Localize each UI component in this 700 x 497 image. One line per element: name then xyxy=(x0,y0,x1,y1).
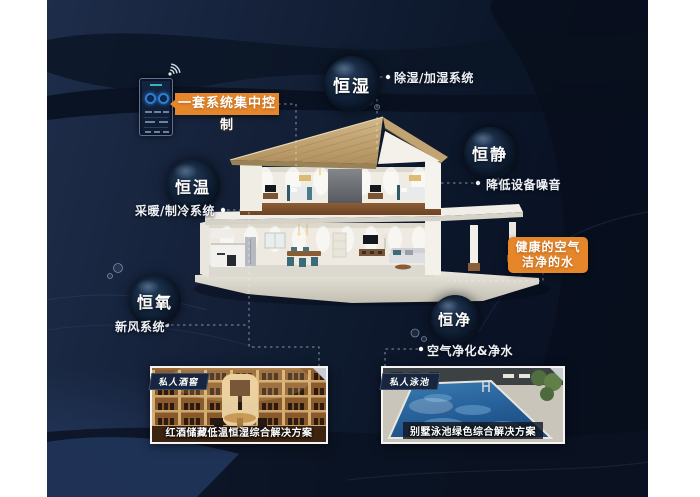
bubble-label: 恒温 xyxy=(175,174,211,198)
bubble-constant-humidity: 恒湿 xyxy=(324,56,380,112)
bubble-constant-clean: 恒净 xyxy=(431,295,479,343)
wifi-icon xyxy=(167,61,183,77)
control-knob-icon xyxy=(145,93,156,104)
central-control-label: 一套系统集中控制 xyxy=(175,93,279,115)
desc-reduce-equipment-noise: 降低设备噪音 xyxy=(486,176,561,193)
photo-tag-private-wine-cellar: 私人酒窖 xyxy=(149,373,210,390)
healthy-air-clean-water-box: 健康的空气 洁净的水 xyxy=(508,237,588,273)
photo-tag-private-pool: 私人泳池 xyxy=(380,373,441,390)
desc-air-water-purification: 空气净化&净水 xyxy=(427,342,513,359)
corner-fold-decoration xyxy=(550,368,563,381)
infographic-canvas: 一套系统集中控制 恒湿 恒静 恒温 恒氧 恒净 除湿/加湿系统 降低设备噪音 采… xyxy=(0,0,700,497)
photo-card-wine-cellar: 私人酒窖 红酒储藏低温恒湿综合解决方案 xyxy=(150,366,328,444)
phone-screen xyxy=(142,81,170,133)
highlight-line-1: 健康的空气 xyxy=(510,240,586,255)
bubble-constant-quiet: 恒静 xyxy=(464,127,516,179)
photo-caption-wine: 红酒储藏低温恒湿综合解决方案 xyxy=(152,424,326,439)
photo-caption-pool: 别墅泳池绿色综合解决方案 xyxy=(383,422,563,439)
control-knob-icon xyxy=(158,93,169,104)
highlight-line-2: 洁净的水 xyxy=(510,255,586,270)
desc-fresh-air-system: 新风系统 xyxy=(115,318,165,335)
bubble-label: 恒静 xyxy=(472,141,508,165)
bubble-label: 恒净 xyxy=(438,309,472,330)
bubble-label: 恒氧 xyxy=(137,289,173,313)
stage-background: 一套系统集中控制 恒湿 恒静 恒温 恒氧 恒净 除湿/加湿系统 降低设备噪音 采… xyxy=(47,0,648,497)
corner-fold-decoration xyxy=(313,368,326,381)
bubble-label: 恒湿 xyxy=(333,72,371,97)
desc-dehumidify-humidify-system: 除湿/加湿系统 xyxy=(394,69,474,86)
photo-card-private-pool: 私人泳池 别墅泳池绿色综合解决方案 xyxy=(381,366,565,444)
desc-heating-cooling-system: 采暖/制冷系统 xyxy=(135,202,215,219)
smartphone-controller xyxy=(139,78,173,136)
